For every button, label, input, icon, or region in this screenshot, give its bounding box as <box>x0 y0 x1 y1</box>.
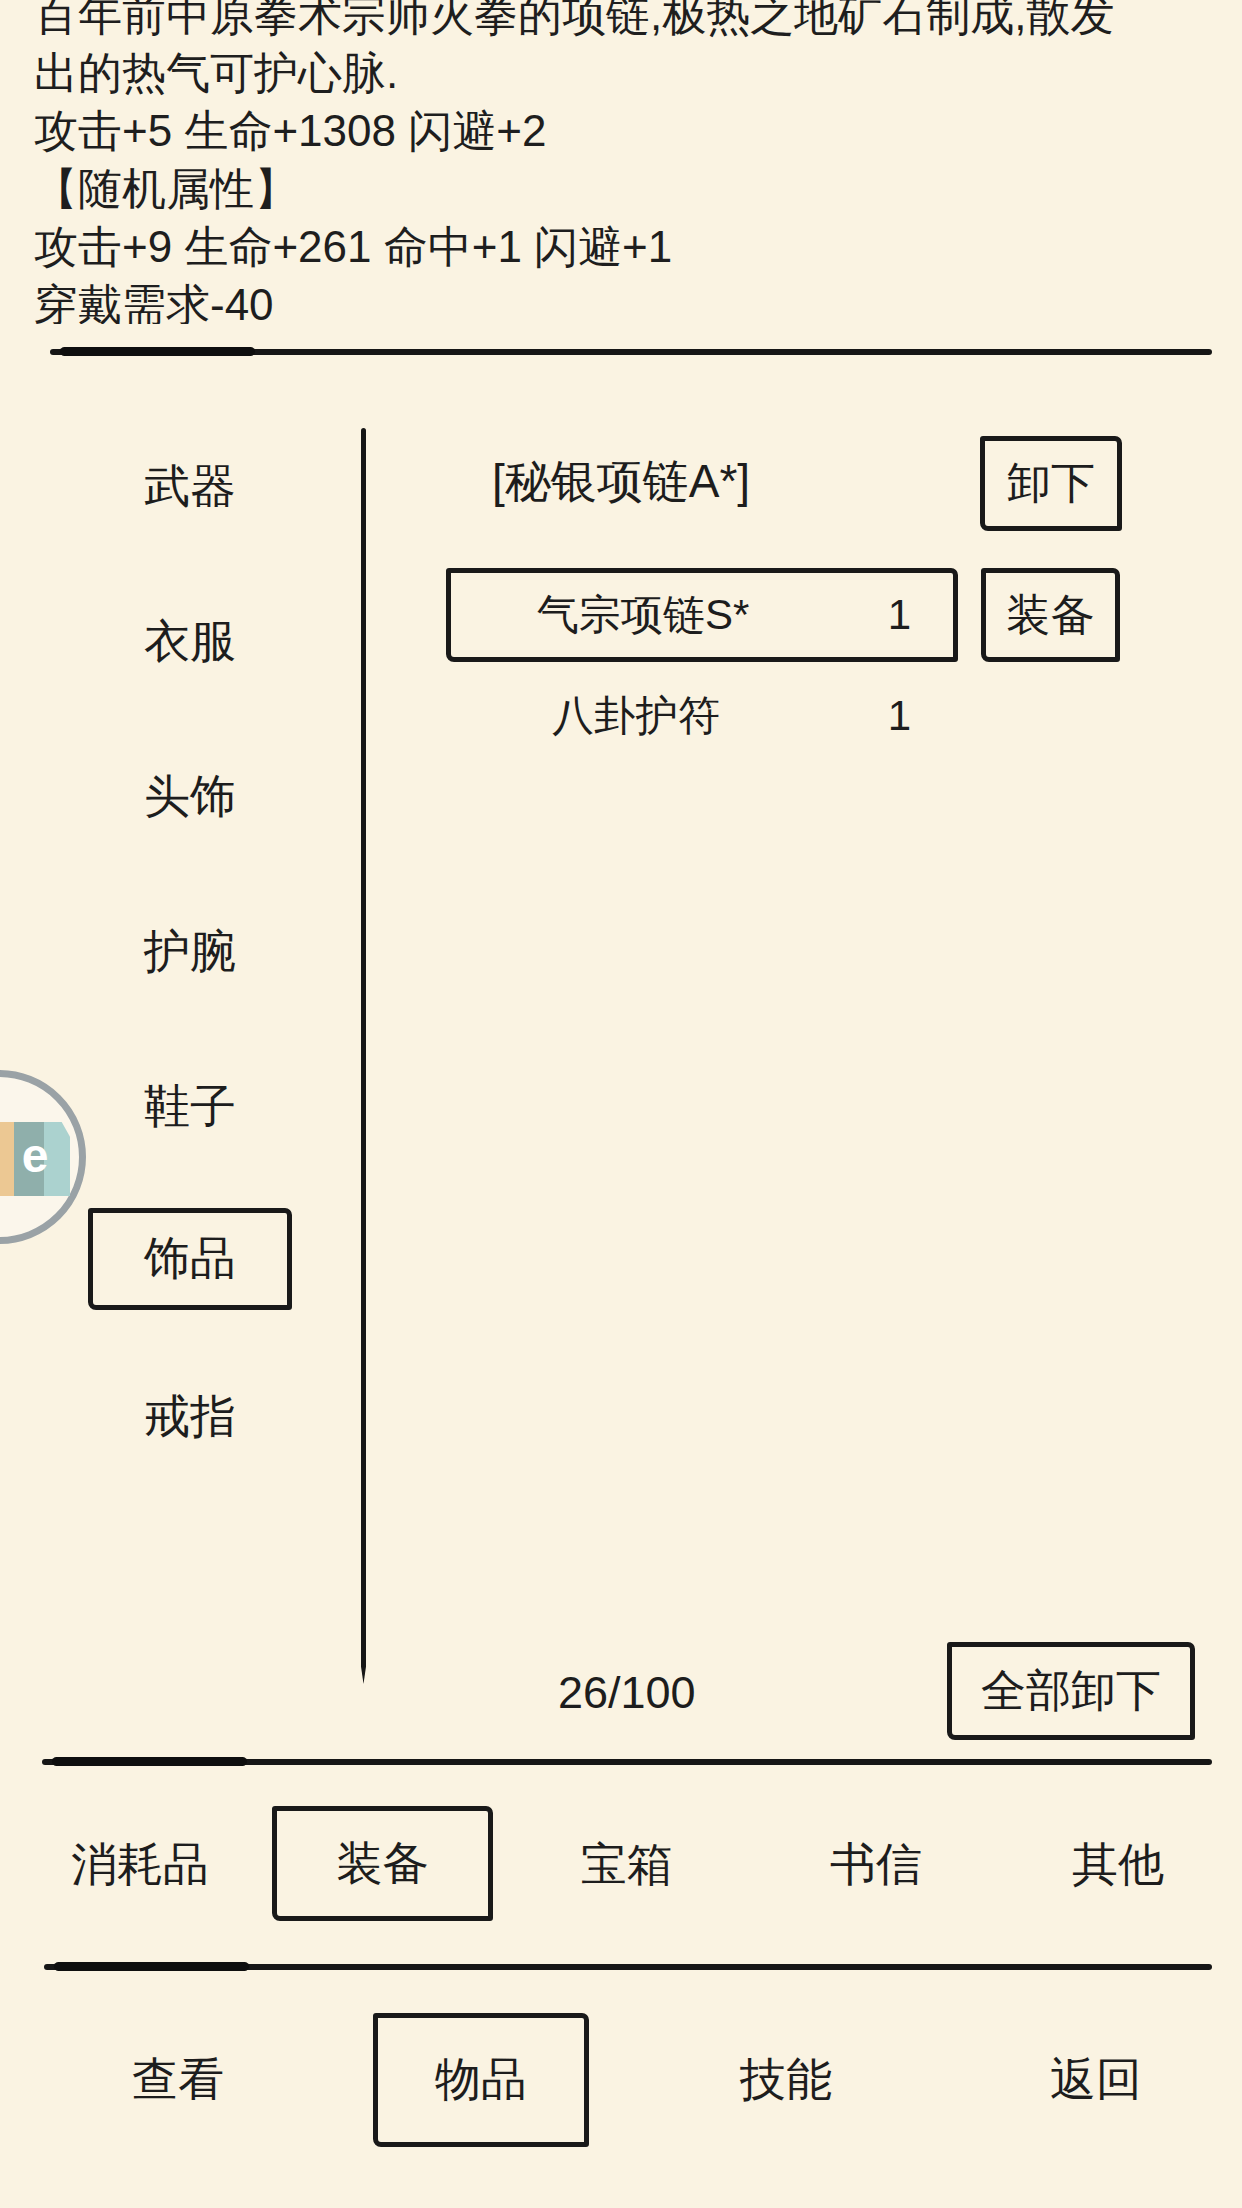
tab-consumables[interactable]: 消耗品 <box>71 1836 209 1892</box>
item-random-attrs-header: 【随机属性】 <box>34 160 1220 218</box>
nav-back-button[interactable]: 返回 <box>1050 2051 1142 2107</box>
game-screen: 百年前中原拳术宗师火拳的项链,极热之地矿石制成,散发 出的热气可护心脉. 攻击+… <box>0 0 1242 2208</box>
sidebar-item-weapons[interactable]: 武器 <box>60 457 320 515</box>
item-random-stats-line: 攻击+9 生命+261 命中+1 闪避+1 <box>34 218 1220 276</box>
sidebar-item-shoes[interactable]: 鞋子 <box>60 1077 320 1135</box>
divider-above-tabs <box>42 1759 1212 1765</box>
inventory-row-selected[interactable]: 气宗项链S* 1 <box>446 568 958 662</box>
sidebar-item-clothes[interactable]: 衣服 <box>60 612 320 670</box>
item-name: 气宗项链S* <box>537 587 888 643</box>
tab-others[interactable]: 其他 <box>1072 1836 1164 1892</box>
item-description-line: 出的热气可护心脉. <box>34 44 1220 102</box>
equip-button-label: 装备 <box>1007 586 1095 645</box>
unequip-button[interactable]: 卸下 <box>980 436 1122 531</box>
tab-equipment-selected[interactable]: 装备 <box>272 1806 493 1921</box>
item-stats-line: 攻击+5 生命+1308 闪避+2 <box>34 102 1220 160</box>
nav-skills-button[interactable]: 技能 <box>740 2051 832 2107</box>
divider-vertical <box>361 428 366 1684</box>
unequip-all-button-label: 全部卸下 <box>981 1661 1161 1721</box>
nav-items-button-selected[interactable]: 物品 <box>373 2013 589 2147</box>
item-requirement-line: 穿戴需求-40 <box>34 276 1220 324</box>
item-description-line: 百年前中原拳术宗师火拳的项链,极热之地矿石制成,散发 <box>34 0 1220 44</box>
sidebar-item-headwear[interactable]: 头饰 <box>60 767 320 825</box>
divider-top <box>50 349 1212 355</box>
equipped-item-name: [秘银项链A*] <box>492 452 750 510</box>
nav-label: 物品 <box>435 2049 527 2111</box>
nav-view-button[interactable]: 查看 <box>132 2051 224 2107</box>
tab-label: 装备 <box>337 1833 429 1895</box>
inventory-row[interactable]: 八卦护符 1 <box>446 686 958 746</box>
sidebar-item-label: 饰品 <box>144 1228 236 1290</box>
item-name: 八卦护符 <box>552 688 888 744</box>
sidebar-item-accessories-selected[interactable]: 饰品 <box>88 1208 292 1310</box>
logo-letter: e <box>0 1128 70 1183</box>
equip-button[interactable]: 装备 <box>981 568 1120 662</box>
unequip-button-label: 卸下 <box>1007 454 1095 513</box>
item-count: 1 <box>888 591 911 639</box>
tab-chests[interactable]: 宝箱 <box>581 1836 673 1892</box>
inventory-capacity: 26/100 <box>558 1668 696 1718</box>
item-description: 百年前中原拳术宗师火拳的项链,极热之地矿石制成,散发 出的热气可护心脉. 攻击+… <box>34 0 1220 324</box>
e-logo-icon[interactable]: e <box>0 1122 70 1196</box>
sidebar-item-rings[interactable]: 戒指 <box>60 1387 320 1445</box>
tab-letters[interactable]: 书信 <box>830 1836 922 1892</box>
unequip-all-button[interactable]: 全部卸下 <box>947 1642 1195 1740</box>
divider-above-nav <box>44 1964 1212 1970</box>
sidebar-item-bracers[interactable]: 护腕 <box>60 922 320 980</box>
item-count: 1 <box>888 692 911 740</box>
